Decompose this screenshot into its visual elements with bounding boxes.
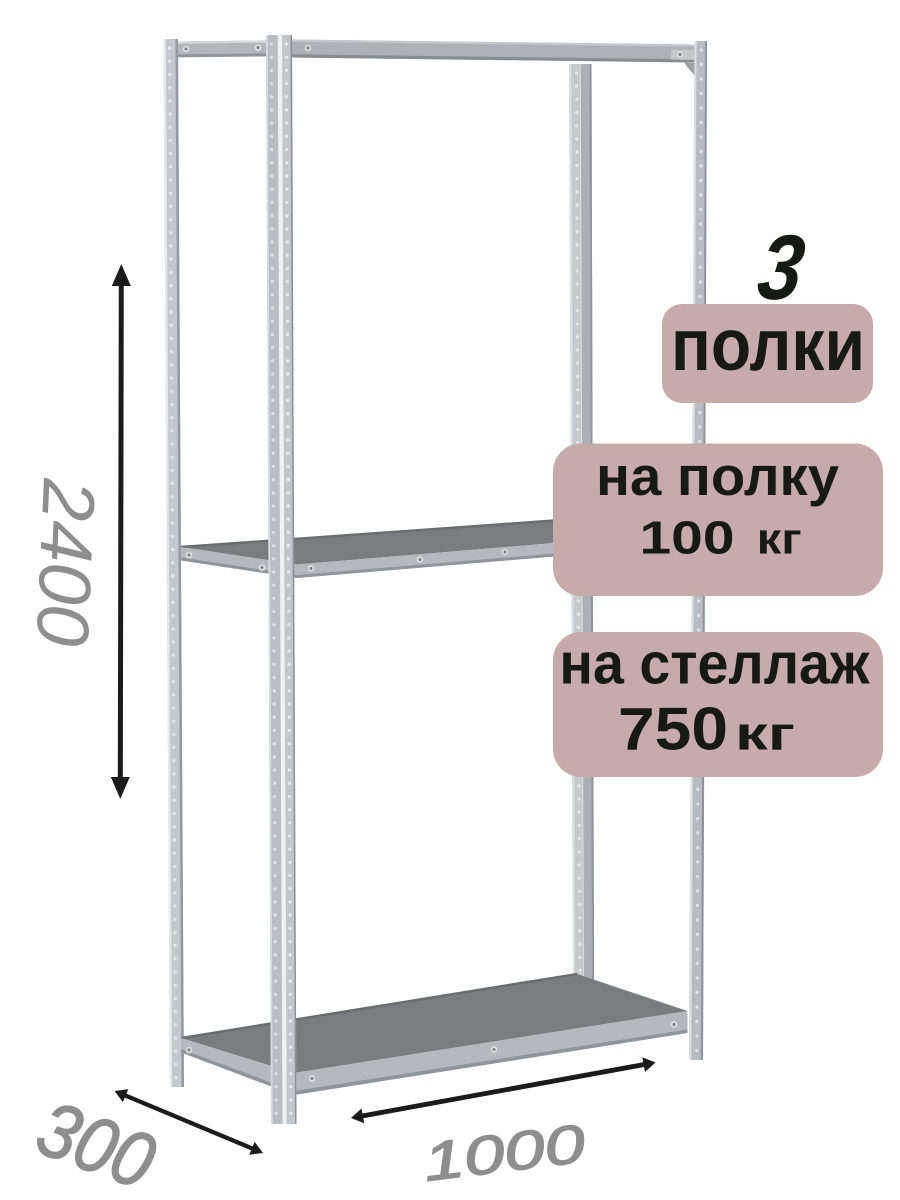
svg-text:кг: кг — [735, 708, 795, 761]
svg-text:кг: кг — [757, 515, 802, 564]
svg-text:100: 100 — [640, 512, 735, 564]
svg-text:на стеллаж: на стеллаж — [559, 631, 870, 696]
svg-text:750: 750 — [618, 695, 728, 763]
svg-text:полки: полки — [671, 305, 865, 386]
svg-text:на полку: на полку — [596, 445, 839, 507]
svg-text:2400: 2400 — [21, 476, 111, 647]
